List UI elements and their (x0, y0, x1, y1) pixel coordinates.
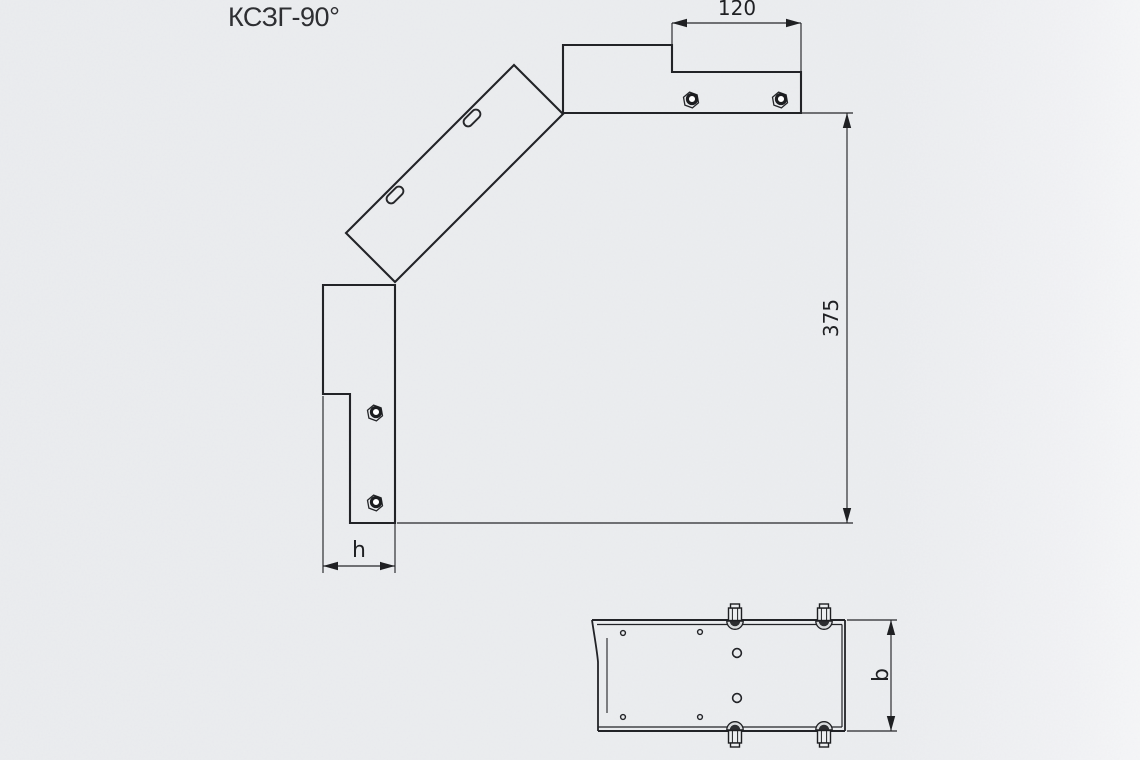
drawing-canvas: КСЗГ-90° (0, 0, 1140, 760)
bolt-icon (816, 604, 832, 629)
bolt-icon (727, 604, 743, 629)
bolt-icon (816, 722, 832, 747)
dimension-b-label: b (869, 668, 894, 682)
bolt-icon (727, 722, 743, 747)
technical-drawing: 120 375 h (0, 0, 1140, 760)
dimension-375-label: 375 (819, 299, 843, 337)
dimension-120-label: 120 (718, 0, 756, 20)
dimension-h-label: h (352, 538, 366, 563)
